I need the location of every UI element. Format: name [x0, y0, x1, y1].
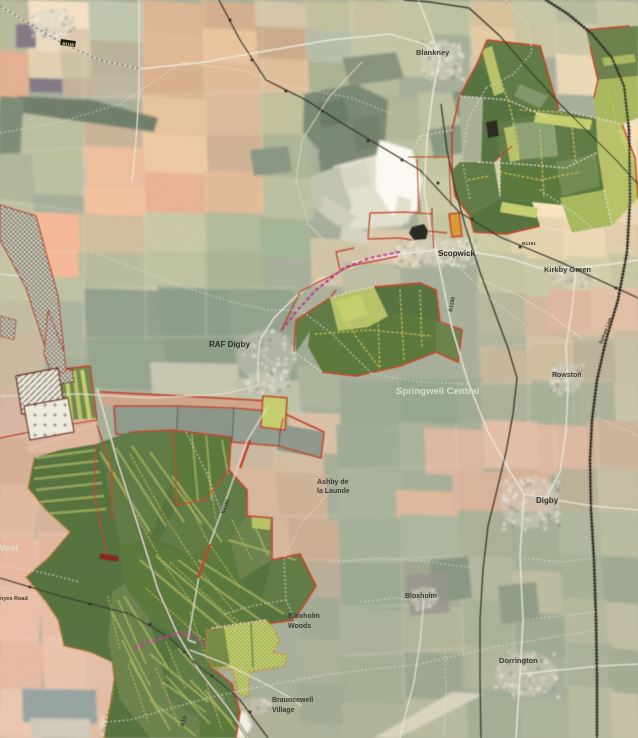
- svg-text:Digby: Digby: [536, 496, 559, 505]
- svg-text:Blankney: Blankney: [416, 48, 450, 57]
- svg-text:RAF Digby: RAF Digby: [209, 340, 250, 349]
- svg-text:Bloxholm: Bloxholm: [405, 593, 437, 600]
- svg-text:Dorrington: Dorrington: [499, 656, 538, 665]
- svg-text:Village: Village: [272, 707, 295, 714]
- svg-text:B1191: B1191: [522, 241, 536, 247]
- svg-text:Kirkby Green: Kirkby Green: [544, 265, 592, 274]
- svg-text:Rowston: Rowston: [552, 372, 582, 379]
- svg-text:la Launde: la Launde: [317, 488, 350, 495]
- svg-text:ll West: ll West: [0, 543, 19, 554]
- svg-text:Woods: Woods: [288, 623, 311, 630]
- svg-text:nyes Road: nyes Road: [0, 596, 28, 602]
- svg-text:Bloxholm: Bloxholm: [288, 613, 320, 620]
- svg-text:Ashby de: Ashby de: [317, 479, 349, 486]
- svg-text:Brauncewell: Brauncewell: [272, 697, 313, 704]
- svg-text:Springwell Central: Springwell Central: [396, 386, 479, 397]
- svg-text:Scopwick: Scopwick: [438, 249, 475, 258]
